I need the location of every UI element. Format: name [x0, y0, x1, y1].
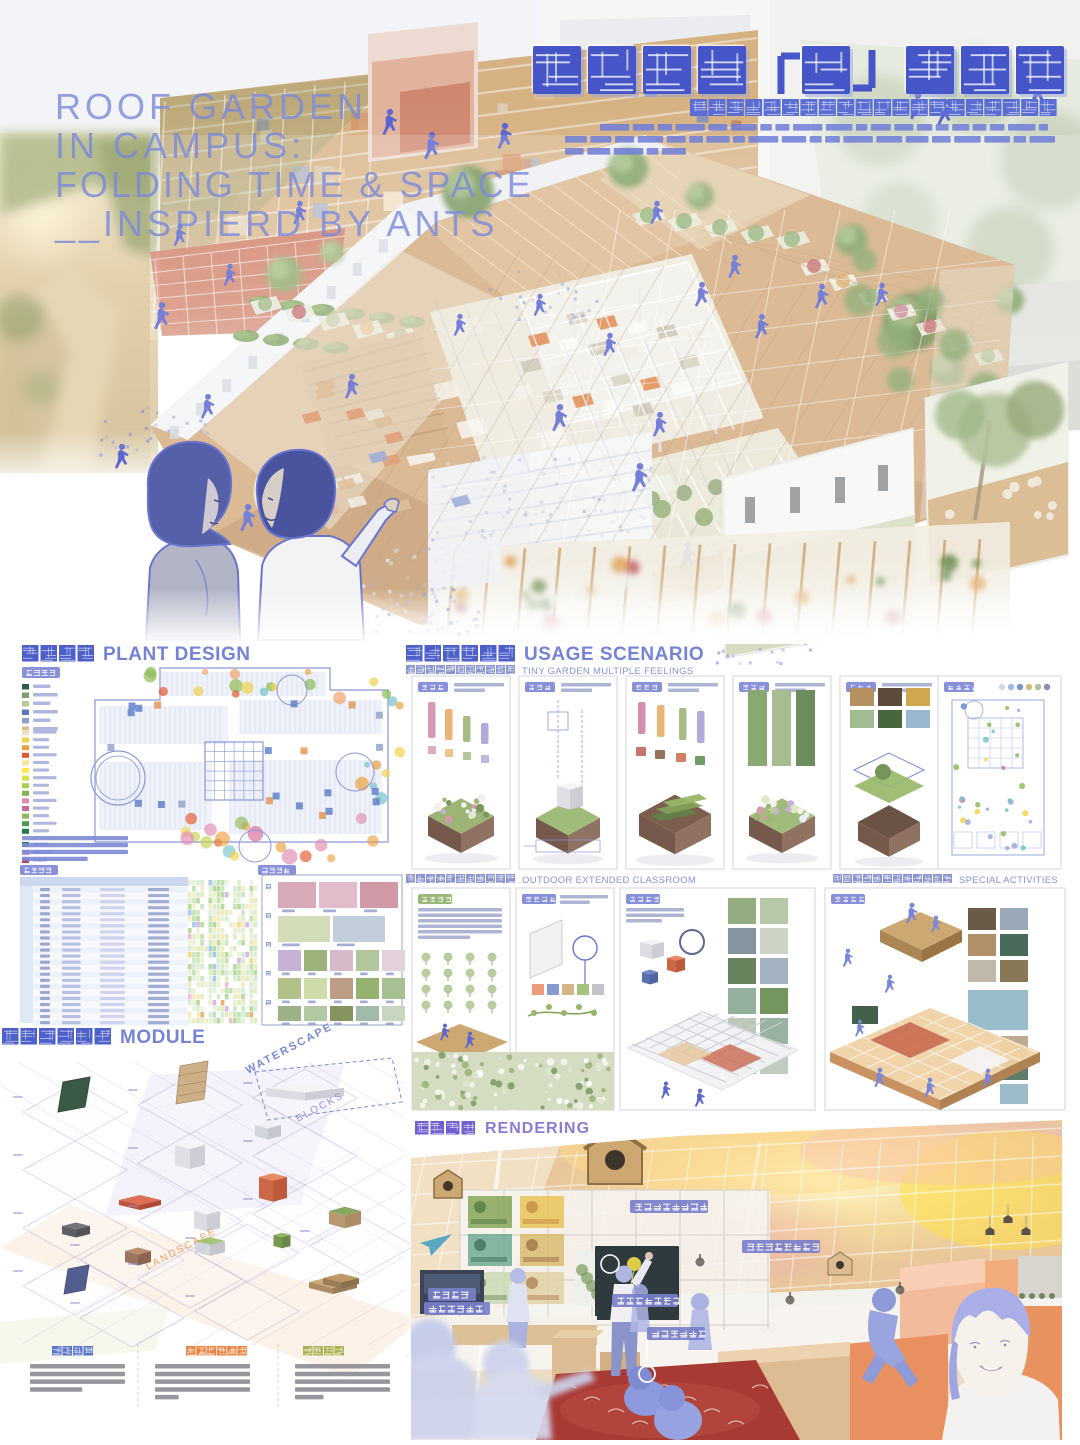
- svg-text:USAGE SCENARIO: USAGE SCENARIO: [524, 644, 704, 665]
- svg-text:OUTDOOR EXTENDED CLASSROOM: OUTDOOR EXTENDED CLASSROOM: [522, 875, 696, 886]
- svg-text:FOLDING TIME & SPACE: FOLDING TIME & SPACE: [55, 164, 534, 205]
- svg-text:IN CAMPUS:: IN CAMPUS:: [55, 125, 305, 166]
- svg-text:SPECIAL ACTIVITIES: SPECIAL ACTIVITIES: [959, 875, 1058, 886]
- svg-text:ROOF GARDEN: ROOF GARDEN: [55, 86, 367, 127]
- svg-text:TINY GARDEN MULTIPLE FEELINGS: TINY GARDEN MULTIPLE FEELINGS: [522, 666, 693, 677]
- svg-text:PLANT DESIGN: PLANT DESIGN: [103, 644, 250, 665]
- svg-text:__INSPIERD BY ANTS: __INSPIERD BY ANTS: [54, 203, 498, 244]
- svg-text:MODULE: MODULE: [120, 1027, 205, 1048]
- svg-text:RENDERING: RENDERING: [485, 1120, 590, 1137]
